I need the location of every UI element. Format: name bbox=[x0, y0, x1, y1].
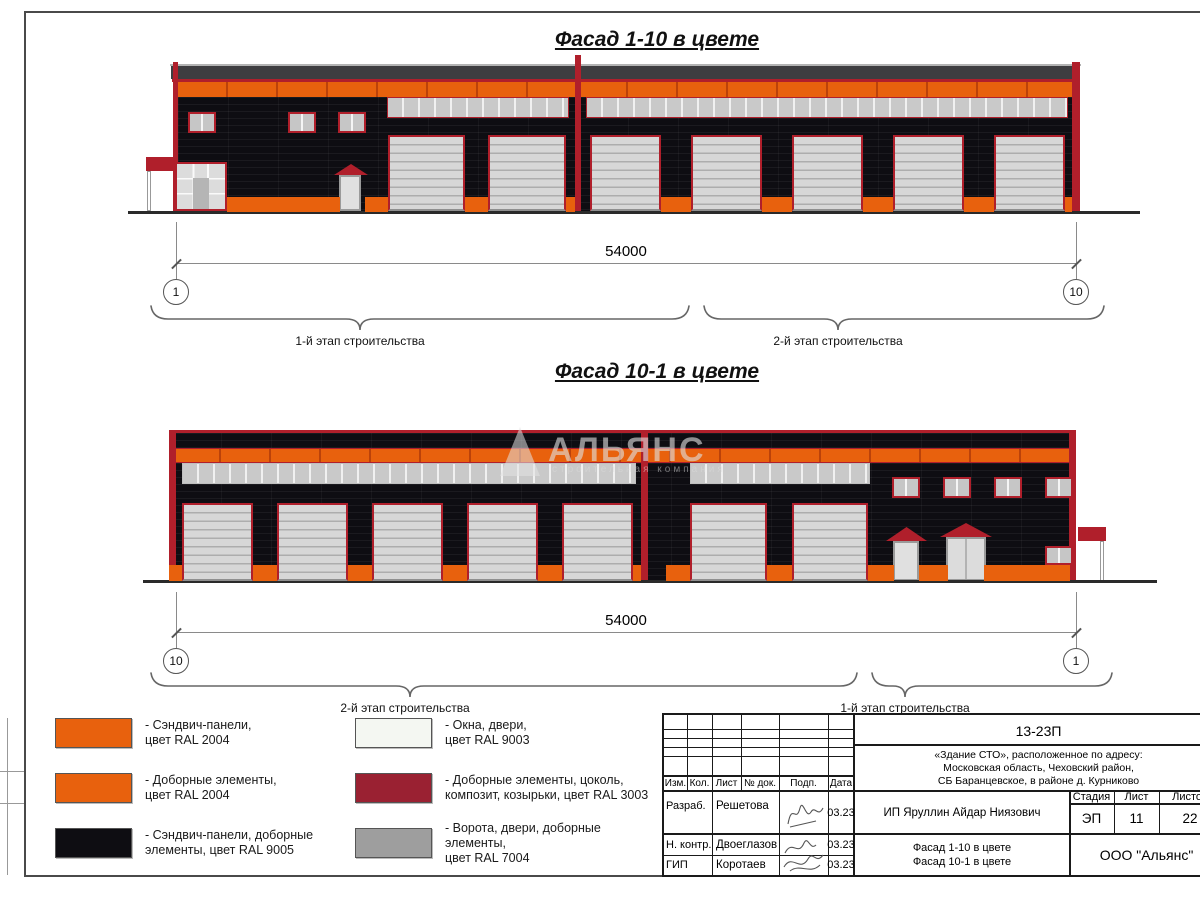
facade2-window bbox=[892, 477, 920, 498]
facade1-column-division bbox=[575, 55, 581, 212]
facade2-plinth-segment bbox=[348, 565, 372, 581]
tb-company: ООО "Альянс" bbox=[1071, 835, 1200, 875]
watermark-subtitle: строительная компания bbox=[552, 464, 726, 475]
legend-label: - Ворота, двери, доборные элементы, цвет… bbox=[445, 821, 665, 866]
facade1-window bbox=[188, 112, 216, 133]
signature bbox=[780, 835, 828, 877]
facade1-storefront-door bbox=[193, 178, 209, 209]
legend-label: - Сэндвич-панели, доборные элементы, цве… bbox=[145, 828, 313, 858]
tb-date: 03.23 bbox=[828, 836, 854, 854]
facade1-ribbon-window-right bbox=[586, 97, 1068, 118]
tb-stage-label: Стадия bbox=[1069, 790, 1114, 803]
facade1-entry-door bbox=[339, 175, 361, 211]
facade1-plinth-segment bbox=[365, 197, 388, 212]
facade1-gate-door bbox=[994, 135, 1065, 211]
facade2-gate-door bbox=[182, 503, 253, 581]
dim1-stage-right-label: 2-й этап строительства bbox=[688, 334, 988, 348]
facade1-gate-door bbox=[488, 135, 566, 211]
facade1-plinth-segment bbox=[465, 197, 488, 212]
color-swatch-ral9005 bbox=[55, 828, 132, 858]
facade2-entry-door bbox=[893, 541, 919, 581]
dim1-axis-right: 10 bbox=[1063, 279, 1089, 305]
tb-project-desc: «Здание СТО», расположенное по адресу: М… bbox=[855, 746, 1200, 790]
margin-divider bbox=[0, 771, 24, 772]
facade-1-10-title: Фасад 1-10 в цвете bbox=[157, 28, 1157, 52]
facade1-canopy-post bbox=[147, 171, 151, 211]
facade2-gate-door bbox=[690, 503, 767, 581]
tb-col-kol: Кол. bbox=[687, 777, 712, 790]
tb-sheets-value: 22 bbox=[1159, 803, 1200, 833]
tb-stage-value: ЭП bbox=[1069, 803, 1114, 833]
signature bbox=[782, 794, 827, 832]
tb-drawing-title: Фасад 1-10 в цвете Фасад 10-1 в цвете bbox=[855, 835, 1069, 875]
facade1-window bbox=[288, 112, 316, 133]
tb-role-gip: ГИП bbox=[666, 857, 712, 873]
facade1-plinth-segment bbox=[762, 197, 792, 212]
facade2-plinth-segment bbox=[169, 565, 182, 581]
legend-item: - Сэндвич-панели, доборные элементы, цве… bbox=[55, 824, 345, 862]
facade1-gate-door bbox=[388, 135, 465, 211]
stage-brace bbox=[703, 303, 1105, 331]
legend-item: - Окна, двери, цвет RAL 9003 bbox=[355, 714, 665, 752]
tb-role-razrab: Разраб. bbox=[666, 798, 712, 814]
facade1-plinth-segment bbox=[566, 197, 575, 212]
dim1-axis-left: 1 bbox=[163, 279, 189, 305]
facade1-gate-door bbox=[893, 135, 964, 211]
tb-name-korotaev: Коротаев bbox=[716, 857, 786, 873]
tb-sheet-label: Лист bbox=[1114, 790, 1159, 803]
facade1-plinth-segment bbox=[863, 197, 893, 212]
facade2-double-door bbox=[946, 537, 986, 581]
facade2-plinth-segment bbox=[443, 565, 467, 581]
facade1-ribbon-window-left bbox=[387, 97, 569, 118]
facade1-plinth-segment bbox=[964, 197, 994, 212]
tb-col-list: Лист bbox=[712, 777, 741, 790]
tb-project-code: 13-23П bbox=[855, 717, 1200, 744]
tb-sheets-label: Листов bbox=[1159, 790, 1200, 803]
frame-left bbox=[24, 11, 26, 877]
facade1-plinth-segment bbox=[227, 197, 340, 212]
dim1-line bbox=[176, 263, 1076, 264]
facade2-plinth-segment bbox=[538, 565, 562, 581]
facade1-window bbox=[338, 112, 366, 133]
facade-10-1-title: Фасад 10-1 в цвете bbox=[157, 360, 1157, 384]
tb-name-dvoeglazov: Двоеглазов bbox=[716, 837, 786, 853]
facade2-window bbox=[943, 477, 971, 498]
tb-col-podp: Подп. bbox=[779, 777, 828, 790]
dim1-ext-right bbox=[1076, 222, 1077, 279]
legend-label: - Доборные элементы, цвет RAL 2004 bbox=[145, 773, 277, 803]
sheet: Фасад 1-10 в цвете 54000 1 10 1-й этап с… bbox=[0, 0, 1200, 900]
tb-client: ИП Яруллин Айдар Ниязович bbox=[855, 792, 1069, 833]
facade2-gate-door bbox=[372, 503, 443, 581]
color-swatch-ral9003 bbox=[355, 718, 432, 748]
frame-top bbox=[24, 11, 1200, 13]
tb-date: 03.23 bbox=[828, 792, 854, 833]
dim2-stage-left-label: 2-й этап строительства bbox=[255, 701, 555, 715]
facade1-orange-band bbox=[178, 82, 1072, 97]
tb-hline bbox=[664, 738, 854, 739]
tb-role-nkontr: Н. контр. bbox=[666, 837, 722, 853]
facade2-plinth-segment bbox=[766, 565, 792, 581]
dim2-line bbox=[176, 632, 1076, 633]
facade1-gate-door bbox=[691, 135, 762, 211]
facade2-column-left bbox=[169, 430, 176, 582]
facade2-plinth-segment bbox=[666, 565, 690, 581]
dim1-stage-left-label: 1-й этап строительства bbox=[210, 334, 510, 348]
facade1-gate-door bbox=[590, 135, 661, 211]
legend-item: - Ворота, двери, доборные элементы, цвет… bbox=[355, 824, 665, 862]
legend-item: - Доборные элементы, цвет RAL 2004 bbox=[55, 769, 345, 807]
facade2-plinth-segment bbox=[984, 565, 1070, 581]
facade2-end-canopy bbox=[1078, 527, 1106, 541]
margin-strip-line bbox=[7, 718, 8, 875]
facade2-canopy-post bbox=[1100, 541, 1104, 581]
facade2-gate-door bbox=[792, 503, 868, 581]
facade1-plinth-segment bbox=[661, 197, 691, 212]
facade1-column-right bbox=[1072, 62, 1080, 212]
facade2-window bbox=[994, 477, 1022, 498]
tb-hline bbox=[664, 747, 854, 748]
legend-label: - Доборные элементы, цоколь, композит, к… bbox=[445, 773, 648, 803]
tb-name-reshetova: Решетова bbox=[716, 798, 778, 814]
facade2-plinth-segment bbox=[868, 565, 894, 581]
color-swatch-ral2004-trim bbox=[55, 773, 132, 803]
color-swatch-ral7004 bbox=[355, 828, 432, 858]
margin-divider bbox=[0, 803, 24, 804]
tb-col-dok: № док. bbox=[741, 777, 779, 790]
tb-hline bbox=[664, 756, 854, 757]
tb-sheet-value: 11 bbox=[1114, 803, 1159, 833]
facade1-gate-door bbox=[792, 135, 863, 211]
facade2-window bbox=[1045, 477, 1073, 498]
tb-date: 03.23 bbox=[828, 856, 854, 874]
stage-brace bbox=[150, 303, 690, 331]
legend-item: - Сэндвич-панели, цвет RAL 2004 bbox=[55, 714, 345, 752]
facade2-plinth-segment bbox=[253, 565, 277, 581]
facade2-plinth-segment bbox=[633, 565, 641, 581]
facade1-entry-canopy bbox=[146, 157, 176, 171]
dim2-value: 54000 bbox=[176, 612, 1076, 629]
color-swatch-ral3003 bbox=[355, 773, 432, 803]
facade2-gate-door bbox=[277, 503, 348, 581]
legend-item: - Доборные элементы, цоколь, композит, к… bbox=[355, 769, 665, 807]
facade2-lower-window bbox=[1045, 546, 1073, 565]
tb-col-izm: Изм. bbox=[664, 777, 687, 790]
facade2-gate-door bbox=[562, 503, 633, 581]
facade2-gate-door bbox=[467, 503, 538, 581]
dim1-value: 54000 bbox=[176, 243, 1076, 260]
facade1-plinth-segment bbox=[1065, 197, 1072, 212]
dim2-ext-right bbox=[1076, 592, 1077, 648]
title-block: Изм. Кол. Лист № док. Подп. Дата Разраб.… bbox=[662, 713, 1200, 877]
legend-label: - Сэндвич-панели, цвет RAL 2004 bbox=[145, 718, 251, 748]
tb-col-data: Дата bbox=[828, 777, 854, 790]
tb-hline bbox=[664, 729, 854, 730]
stage-brace bbox=[871, 670, 1113, 698]
legend-label: - Окна, двери, цвет RAL 9003 bbox=[445, 718, 530, 748]
stage-brace bbox=[150, 670, 858, 698]
color-swatch-ral2004 bbox=[55, 718, 132, 748]
facade2-plinth-segment bbox=[919, 565, 948, 581]
facade1-roof-band bbox=[171, 66, 1079, 79]
